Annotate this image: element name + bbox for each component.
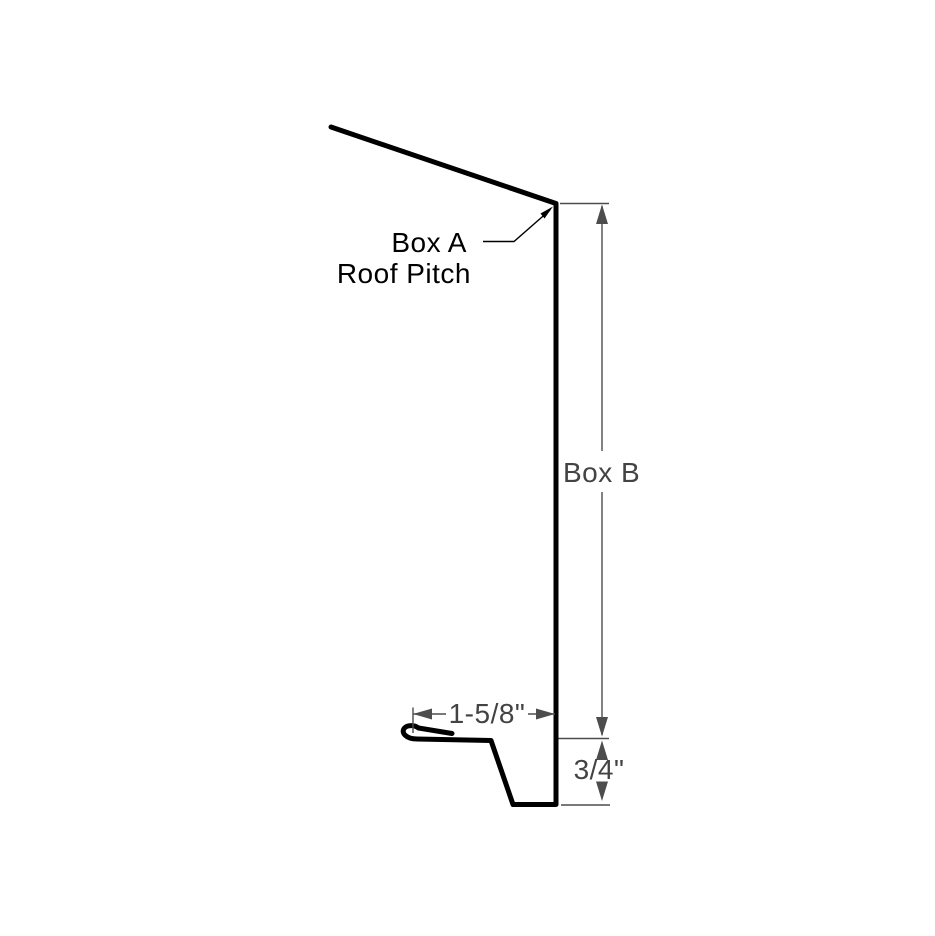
roof-pitch-label: Roof Pitch: [337, 258, 471, 289]
diagram-svg: Box A Roof Pitch Box B 1-5/8" 3/4": [0, 0, 935, 936]
trim-profile-diagram: Box A Roof Pitch Box B 1-5/8" 3/4": [0, 0, 935, 936]
box-b-label: Box B: [563, 457, 640, 488]
arrowhead-right-icon: [536, 709, 555, 720]
arrowhead-down-icon: [596, 717, 608, 737]
box-a-label: Box A: [391, 227, 467, 258]
box-a-callout: [483, 207, 553, 242]
box-a-leader-line: [483, 210, 550, 242]
hem-width-label: 1-5/8": [449, 698, 526, 729]
arrowhead-left-icon: [413, 709, 432, 720]
arrowhead-up-icon: [596, 205, 608, 225]
kick-height-label: 3/4": [574, 754, 625, 785]
